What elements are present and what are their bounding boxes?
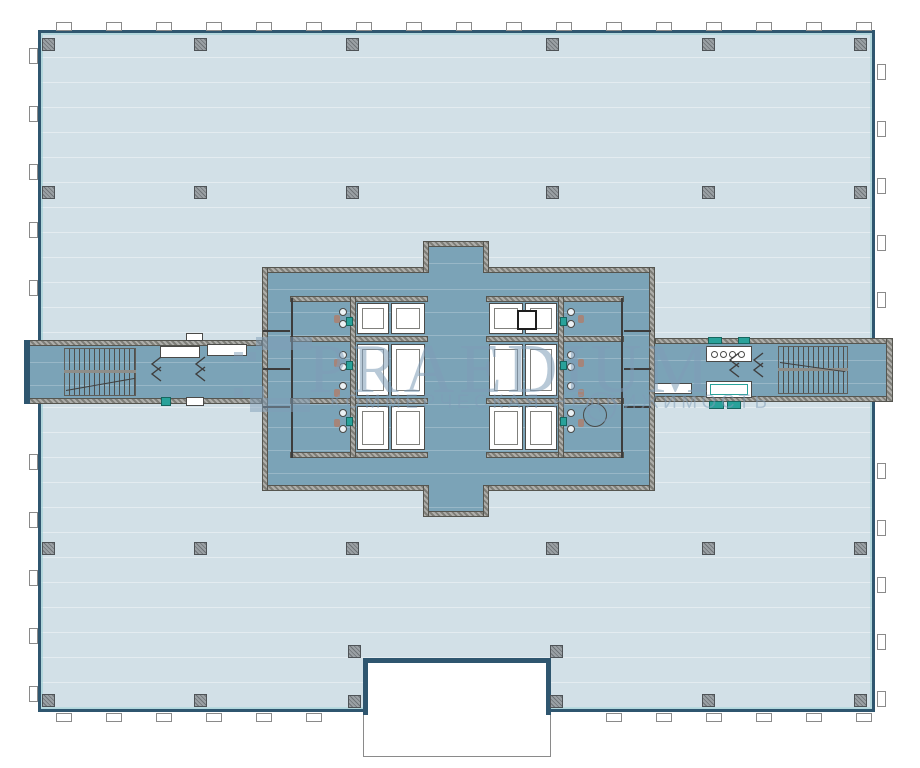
core-partition-line	[624, 368, 651, 370]
core-wall	[486, 398, 624, 404]
mullion-tab-bottom	[256, 713, 272, 722]
structural-column	[854, 694, 867, 707]
left-wing-break-chevron-icon	[194, 356, 207, 382]
core-wall	[423, 511, 489, 517]
structural-column	[348, 645, 361, 658]
wall-fixture-icon	[334, 315, 340, 323]
core-partition-line	[263, 330, 290, 332]
core-door-mark	[560, 417, 567, 426]
toilet-fixture-icon	[567, 382, 575, 390]
mullion-tab-left	[29, 628, 38, 644]
mullion-tab-bottom	[856, 713, 872, 722]
mullion-tab-bottom	[206, 713, 222, 722]
core-wall	[483, 267, 655, 273]
toilet-fixture-icon	[567, 351, 575, 359]
atrium-notch-top-wall	[363, 658, 551, 663]
structural-column	[702, 542, 715, 555]
mullion-tab-top	[856, 22, 872, 31]
structural-column	[702, 186, 715, 199]
wall-fixture-icon	[578, 359, 584, 367]
right-wing-sink-icon	[711, 351, 718, 358]
structural-column	[854, 542, 867, 555]
mullion-tab-left	[29, 512, 38, 528]
elevator-cell	[391, 406, 425, 450]
core-door-mark	[560, 317, 567, 326]
structural-column	[546, 186, 559, 199]
left-wing-fixture	[186, 333, 203, 341]
toilet-fixture-icon	[339, 382, 347, 390]
toilet-fixture-icon	[567, 363, 575, 371]
core-wall	[486, 452, 624, 458]
shaft-hatch-square	[517, 310, 537, 330]
structural-column	[194, 186, 207, 199]
structural-column	[42, 38, 55, 51]
mullion-tab-top	[56, 22, 72, 31]
left-wing-stair-landing	[64, 370, 136, 373]
right-wing-door-mark	[709, 401, 724, 409]
elevator-car	[494, 308, 518, 329]
structural-column	[702, 694, 715, 707]
right-wing-break-chevron-icon	[728, 352, 741, 378]
right-wing-wall	[655, 338, 893, 344]
mullion-tab-right	[877, 235, 886, 251]
right-wing-break-chevron-icon	[752, 352, 765, 378]
mullion-tab-top	[806, 22, 822, 31]
right-wing-sink-icon	[720, 351, 727, 358]
core-wall	[649, 267, 655, 491]
mullion-tab-left	[29, 570, 38, 586]
mullion-tab-left	[29, 686, 38, 702]
structural-column	[348, 695, 361, 708]
mullion-tab-top	[606, 22, 622, 31]
structural-column	[42, 542, 55, 555]
mullion-tab-right	[877, 691, 886, 707]
mullion-tab-left	[29, 222, 38, 238]
elevator-cell	[525, 406, 557, 450]
elevator-cell	[489, 406, 523, 450]
elevator-cell	[525, 344, 557, 396]
mullion-tab-right	[877, 577, 886, 593]
mullion-tab-left	[29, 164, 38, 180]
mullion-tab-left	[29, 48, 38, 64]
mullion-tab-right	[877, 520, 886, 536]
core-door-mark	[346, 417, 353, 426]
mullion-tab-right	[877, 64, 886, 80]
mullion-tab-bottom	[606, 713, 622, 722]
mullion-tab-top	[356, 22, 372, 31]
right-wing-end-wall	[886, 338, 893, 402]
wall-fixture-icon	[578, 315, 584, 323]
floor-plan-canvas: PRAEDIUM КОММЕРЧЕСКАЯ НЕДВИЖИМОСТЬ	[0, 0, 920, 768]
structural-column	[854, 38, 867, 51]
elevator-car	[396, 349, 420, 391]
core-partition-line	[624, 406, 651, 408]
elevator-cell	[391, 303, 425, 334]
core-wall	[290, 336, 428, 342]
mullion-tab-top	[656, 22, 672, 31]
mullion-tab-top	[306, 22, 322, 31]
mullion-tab-bottom	[156, 713, 172, 722]
core-wall	[262, 267, 429, 273]
structural-column	[550, 695, 563, 708]
right-wing-door-mark	[727, 401, 741, 409]
toilet-fixture-icon	[339, 409, 347, 417]
left-wing-break-chevron-icon	[150, 356, 163, 382]
core-wall	[290, 452, 428, 458]
mullion-tab-top	[106, 22, 122, 31]
core-door-mark	[346, 361, 353, 370]
core-wall	[290, 398, 428, 404]
structural-column	[42, 694, 55, 707]
structural-column	[854, 186, 867, 199]
core-wall	[486, 336, 624, 342]
mullion-tab-left	[29, 454, 38, 470]
wall-fixture-icon	[578, 389, 584, 397]
left-wing-fixture	[207, 344, 247, 356]
mullion-tab-bottom	[706, 713, 722, 722]
mullion-tab-top	[406, 22, 422, 31]
structural-column	[346, 186, 359, 199]
mullion-tab-bottom	[56, 713, 72, 722]
core-door-mark	[560, 361, 567, 370]
wall-fixture-icon	[578, 419, 584, 427]
mullion-tab-top	[156, 22, 172, 31]
mullion-tab-right	[877, 121, 886, 137]
core-partition-line	[291, 298, 293, 458]
toilet-fixture-icon	[339, 351, 347, 359]
mullion-tab-bottom	[756, 713, 772, 722]
core-wall	[423, 241, 489, 247]
structural-column	[546, 542, 559, 555]
core-wall	[486, 296, 624, 302]
elevator-car	[362, 411, 384, 445]
mullion-tab-top	[556, 22, 572, 31]
mullion-tab-left	[29, 280, 38, 296]
mullion-tab-top	[206, 22, 222, 31]
atrium-notch-side-wall	[363, 661, 368, 715]
mullion-tab-top	[456, 22, 472, 31]
toilet-bowl-icon	[583, 403, 607, 427]
right-wing-wall	[655, 396, 893, 402]
mullion-tab-bottom	[656, 713, 672, 722]
toilet-fixture-icon	[339, 425, 347, 433]
structural-column	[546, 38, 559, 51]
elevator-car	[396, 308, 420, 329]
elevator-car	[494, 349, 518, 391]
mullion-tab-bottom	[306, 713, 322, 722]
mullion-tab-right	[877, 178, 886, 194]
mullion-tab-left	[29, 106, 38, 122]
elevator-cell	[357, 344, 389, 396]
structural-column	[194, 542, 207, 555]
toilet-fixture-icon	[339, 308, 347, 316]
right-wing-fixture-teal-frame	[710, 384, 748, 395]
core-wall	[262, 267, 268, 491]
elevator-car	[362, 308, 384, 329]
structural-column	[346, 38, 359, 51]
structural-column	[346, 542, 359, 555]
wall-fixture-icon	[334, 389, 340, 397]
core-wall	[483, 485, 655, 491]
toilet-fixture-icon	[567, 320, 575, 328]
right-wing-door-mark	[708, 337, 722, 344]
core-partition-line	[263, 406, 290, 408]
structural-column	[702, 38, 715, 51]
toilet-fixture-icon	[567, 308, 575, 316]
elevator-car	[530, 411, 552, 445]
mullion-tab-top	[506, 22, 522, 31]
elevator-car	[396, 411, 420, 445]
left-wing-end-wall	[24, 340, 30, 404]
elevator-car	[530, 349, 552, 391]
right-wing-fixture	[652, 383, 692, 394]
right-wing-door-mark	[738, 337, 750, 344]
core-wall	[423, 485, 429, 517]
core-wall	[483, 241, 489, 273]
elevator-cell	[489, 344, 523, 396]
structural-column	[194, 694, 207, 707]
structural-column	[42, 186, 55, 199]
elevator-car	[362, 349, 384, 391]
elevator-cell	[357, 406, 389, 450]
toilet-fixture-icon	[567, 409, 575, 417]
atrium-notch	[363, 661, 551, 757]
left-wing-fixture	[186, 397, 204, 406]
core-door-mark	[346, 317, 353, 326]
structural-column	[550, 645, 563, 658]
mullion-tab-top	[706, 22, 722, 31]
core-partition-line	[624, 330, 651, 332]
core-wall	[423, 241, 429, 273]
mullion-tab-right	[877, 292, 886, 308]
mullion-tab-bottom	[806, 713, 822, 722]
core-partition-line	[263, 368, 290, 370]
left-wing-door-mark	[161, 397, 171, 406]
mullion-tab-bottom	[106, 713, 122, 722]
structural-column	[194, 38, 207, 51]
elevator-cell	[391, 344, 425, 396]
toilet-fixture-icon	[567, 425, 575, 433]
core-wall	[290, 296, 428, 302]
wall-fixture-icon	[334, 419, 340, 427]
core-wall	[262, 485, 429, 491]
mullion-tab-right	[877, 463, 886, 479]
mullion-tab-top	[256, 22, 272, 31]
wall-fixture-icon	[334, 359, 340, 367]
core-partition-line	[621, 298, 623, 458]
core-wall	[483, 485, 489, 517]
left-wing-wall	[24, 398, 262, 404]
elevator-car	[494, 411, 518, 445]
elevator-cell	[357, 303, 389, 334]
mullion-tab-right	[877, 634, 886, 650]
mullion-tab-top	[756, 22, 772, 31]
